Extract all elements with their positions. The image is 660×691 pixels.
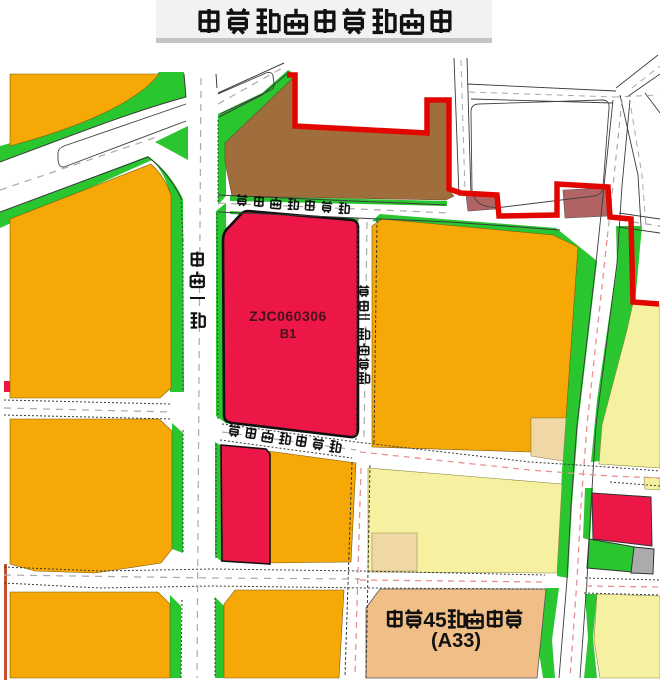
svg-text:ZJC060306: ZJC060306 [249, 308, 327, 324]
svg-text:45: 45 [423, 609, 447, 632]
svg-text:(A33): (A33) [431, 630, 481, 652]
svg-text:B1: B1 [280, 326, 297, 341]
